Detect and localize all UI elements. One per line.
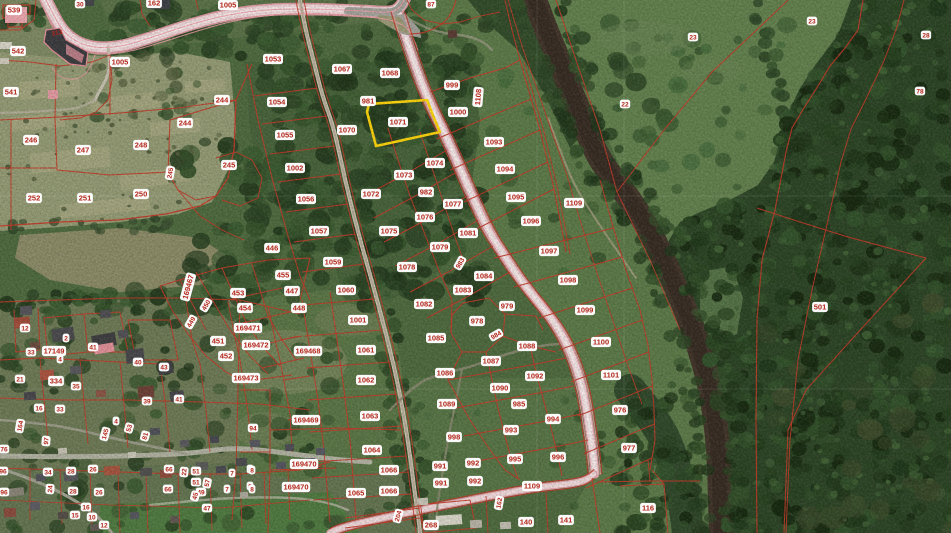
- svg-text:453: 453: [232, 289, 245, 298]
- svg-text:22: 22: [621, 101, 629, 108]
- svg-text:1066: 1066: [381, 466, 398, 475]
- svg-text:26: 26: [95, 489, 103, 496]
- svg-text:244: 244: [216, 96, 229, 105]
- svg-text:1097: 1097: [541, 247, 558, 256]
- svg-text:8: 8: [250, 486, 254, 493]
- svg-text:1059: 1059: [325, 258, 342, 267]
- svg-text:1073: 1073: [396, 171, 413, 180]
- svg-text:26: 26: [89, 466, 97, 473]
- svg-text:1075: 1075: [381, 227, 398, 236]
- svg-text:33: 33: [56, 406, 64, 413]
- svg-text:23: 23: [689, 34, 697, 41]
- svg-text:76: 76: [0, 446, 8, 453]
- svg-text:268: 268: [425, 521, 438, 530]
- svg-text:1094: 1094: [497, 165, 515, 174]
- svg-text:1083: 1083: [455, 286, 472, 295]
- svg-text:169472: 169472: [243, 341, 268, 350]
- svg-text:1063: 1063: [362, 412, 379, 421]
- svg-text:1002: 1002: [287, 164, 304, 173]
- svg-text:169471: 169471: [235, 324, 260, 333]
- svg-text:451: 451: [212, 337, 225, 346]
- svg-text:41: 41: [89, 344, 97, 351]
- svg-text:87: 87: [427, 1, 435, 8]
- svg-text:35: 35: [72, 383, 80, 390]
- svg-text:1067: 1067: [334, 65, 351, 74]
- svg-text:1086: 1086: [437, 369, 454, 378]
- svg-text:1074: 1074: [427, 159, 445, 168]
- svg-text:43: 43: [160, 364, 168, 371]
- svg-text:1109: 1109: [524, 482, 540, 491]
- svg-text:995: 995: [509, 455, 522, 464]
- svg-text:1066: 1066: [381, 487, 398, 496]
- svg-text:539: 539: [8, 6, 21, 15]
- svg-text:1053: 1053: [265, 55, 282, 64]
- svg-text:979: 979: [501, 302, 514, 311]
- svg-text:245: 245: [223, 161, 236, 170]
- svg-text:40: 40: [134, 359, 142, 366]
- svg-text:334: 334: [50, 377, 63, 386]
- svg-text:169473: 169473: [233, 374, 258, 383]
- svg-text:96: 96: [0, 489, 8, 496]
- svg-text:1088: 1088: [519, 342, 536, 351]
- svg-text:16: 16: [35, 405, 43, 412]
- svg-text:1098: 1098: [560, 276, 577, 285]
- svg-text:454: 454: [239, 304, 252, 313]
- svg-text:22: 22: [181, 468, 189, 476]
- svg-text:1095: 1095: [508, 193, 525, 202]
- svg-text:250: 250: [135, 190, 148, 199]
- svg-text:78: 78: [916, 88, 924, 95]
- svg-text:96: 96: [0, 468, 7, 475]
- svg-text:2: 2: [64, 335, 68, 342]
- svg-text:247: 247: [77, 146, 90, 155]
- svg-text:246: 246: [25, 136, 38, 145]
- svg-text:1061: 1061: [358, 346, 375, 355]
- svg-text:33: 33: [27, 349, 35, 356]
- svg-text:24: 24: [47, 485, 55, 493]
- svg-text:12: 12: [100, 522, 108, 529]
- svg-text:12: 12: [21, 325, 29, 332]
- svg-text:1090: 1090: [492, 384, 509, 393]
- svg-text:1096: 1096: [523, 217, 540, 226]
- svg-text:1072: 1072: [363, 190, 380, 199]
- svg-text:97: 97: [43, 437, 51, 445]
- svg-text:1000: 1000: [450, 108, 467, 117]
- svg-text:21: 21: [16, 376, 24, 383]
- svg-text:452: 452: [220, 352, 233, 361]
- svg-text:1071: 1071: [390, 118, 407, 127]
- svg-text:41: 41: [175, 396, 183, 403]
- svg-text:28: 28: [922, 32, 930, 39]
- svg-text:94: 94: [249, 425, 257, 432]
- svg-text:1005: 1005: [220, 1, 237, 10]
- svg-text:51: 51: [192, 479, 200, 486]
- svg-text:982: 982: [420, 188, 433, 197]
- svg-text:542: 542: [12, 47, 25, 56]
- svg-text:15: 15: [71, 512, 79, 519]
- svg-text:8: 8: [250, 467, 254, 474]
- svg-text:992: 992: [469, 477, 482, 486]
- svg-text:17149: 17149: [44, 347, 65, 356]
- svg-text:541: 541: [5, 88, 18, 97]
- svg-text:501: 501: [814, 303, 827, 312]
- svg-text:169468: 169468: [295, 347, 320, 356]
- svg-text:1109: 1109: [566, 199, 582, 208]
- svg-text:996: 996: [552, 453, 565, 462]
- svg-text:1101: 1101: [603, 371, 619, 380]
- svg-text:1057: 1057: [311, 227, 328, 236]
- svg-text:34: 34: [44, 469, 52, 476]
- svg-text:16: 16: [82, 504, 90, 511]
- svg-text:1099: 1099: [577, 306, 594, 315]
- svg-text:991: 991: [435, 479, 448, 488]
- svg-text:140: 140: [520, 518, 533, 527]
- svg-text:51: 51: [192, 468, 200, 475]
- svg-text:1079: 1079: [432, 243, 449, 252]
- svg-text:978: 978: [471, 317, 484, 326]
- svg-text:23: 23: [808, 18, 816, 25]
- svg-text:4: 4: [58, 356, 62, 363]
- svg-text:244: 244: [179, 119, 192, 128]
- svg-text:992: 992: [467, 459, 480, 468]
- svg-text:47: 47: [203, 505, 211, 512]
- svg-text:1082: 1082: [416, 300, 433, 309]
- svg-text:1087: 1087: [483, 357, 500, 366]
- svg-text:169469: 169469: [293, 416, 318, 425]
- svg-text:447: 447: [286, 287, 299, 296]
- svg-text:66: 66: [165, 466, 173, 473]
- svg-text:1085: 1085: [428, 334, 445, 343]
- svg-text:169470: 169470: [283, 483, 308, 492]
- svg-text:976: 976: [614, 406, 627, 415]
- svg-text:1092: 1092: [527, 372, 544, 381]
- svg-text:39: 39: [143, 398, 151, 405]
- svg-text:446: 446: [266, 244, 279, 253]
- svg-text:1064: 1064: [364, 446, 382, 455]
- svg-text:141: 141: [560, 516, 573, 525]
- svg-text:1005: 1005: [112, 58, 129, 67]
- svg-text:1056: 1056: [298, 195, 315, 204]
- svg-text:455: 455: [277, 271, 290, 280]
- svg-text:1060: 1060: [338, 286, 355, 295]
- svg-text:1068: 1068: [382, 69, 399, 78]
- svg-text:1089: 1089: [439, 400, 456, 409]
- svg-text:993: 993: [505, 426, 518, 435]
- svg-text:977: 977: [623, 444, 636, 453]
- svg-text:1093: 1093: [486, 138, 503, 147]
- svg-text:248: 248: [135, 141, 148, 150]
- svg-text:7: 7: [230, 470, 234, 477]
- svg-text:66: 66: [164, 486, 172, 493]
- svg-text:1108: 1108: [473, 89, 483, 106]
- svg-text:981: 981: [362, 97, 375, 106]
- svg-text:1100: 1100: [593, 338, 609, 347]
- svg-text:251: 251: [79, 194, 92, 203]
- svg-text:985: 985: [513, 400, 526, 409]
- svg-text:1077: 1077: [445, 200, 462, 209]
- svg-text:999: 999: [446, 81, 459, 90]
- svg-text:30: 30: [76, 1, 84, 8]
- svg-text:998: 998: [448, 433, 461, 442]
- svg-text:10: 10: [88, 514, 96, 521]
- svg-text:1065: 1065: [348, 489, 365, 498]
- svg-text:162: 162: [148, 0, 161, 8]
- svg-text:116: 116: [642, 504, 654, 513]
- svg-text:1062: 1062: [358, 376, 375, 385]
- svg-text:28: 28: [69, 488, 77, 495]
- svg-text:7: 7: [225, 486, 229, 493]
- svg-text:1076: 1076: [417, 213, 434, 222]
- svg-text:1078: 1078: [399, 263, 416, 272]
- svg-text:1054: 1054: [269, 98, 287, 107]
- svg-text:252: 252: [28, 194, 41, 203]
- svg-text:1001: 1001: [350, 316, 367, 325]
- svg-text:1070: 1070: [339, 126, 356, 135]
- svg-text:1055: 1055: [277, 131, 294, 140]
- svg-text:28: 28: [67, 468, 75, 475]
- svg-text:169470: 169470: [291, 460, 316, 469]
- svg-text:994: 994: [547, 415, 560, 424]
- svg-text:448: 448: [293, 304, 306, 313]
- svg-text:4: 4: [114, 418, 118, 425]
- svg-text:1084: 1084: [476, 272, 494, 281]
- svg-text:1081: 1081: [460, 229, 477, 238]
- svg-text:991: 991: [434, 462, 447, 471]
